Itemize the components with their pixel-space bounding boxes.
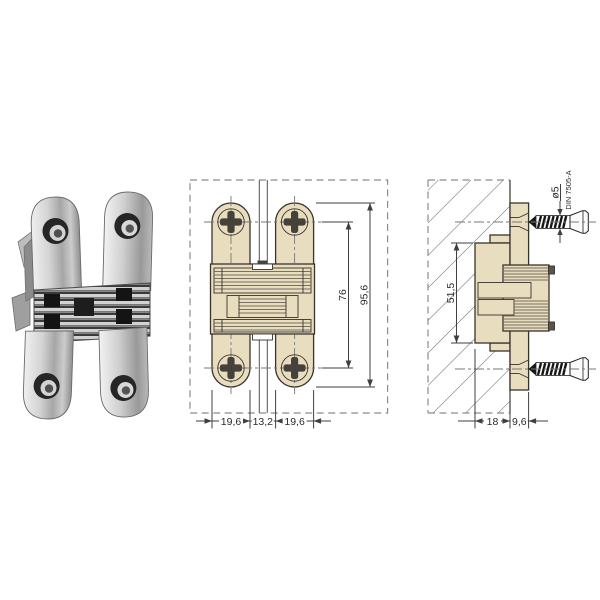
link-body (211, 261, 315, 341)
hinge-photo-strap-top-left (22, 196, 82, 301)
dim-width-center: 13,2 (253, 416, 274, 428)
phillips-screw-icon (218, 209, 244, 235)
hinge-step-top (490, 235, 510, 243)
dim-protrusion: 9,6 (512, 416, 527, 428)
hinge-photo (12, 191, 153, 419)
dim-screw-standard: DIN 7505-A (564, 170, 573, 209)
dim-body-height: 51,5 (445, 283, 457, 304)
phillips-screw-icon (281, 355, 307, 381)
dim-screw-diameter: ø5 (550, 186, 562, 198)
dim-hole-spacing: 76 (337, 289, 349, 301)
hinge-technical-figure: 19,6 13,2 19,6 76 95,6 (0, 0, 600, 600)
dim-mortise-depth: 18 (487, 416, 499, 428)
dim-width-left: 19,6 (221, 416, 242, 428)
pivot-notch-bottom (253, 334, 273, 340)
phillips-screw-icon (218, 355, 244, 381)
link-tongue-lower (478, 300, 514, 316)
side-view-drawing: 18 9,6 51,5 ø5 DIN 7505-A (428, 170, 596, 428)
pivot-cap-bottom (549, 322, 555, 330)
link-tongue-upper (478, 283, 531, 299)
hinge-photo-strap-bottom-left (22, 329, 73, 420)
front-view-hinge (204, 196, 322, 394)
hinge-photo-strap-bottom-right (99, 327, 149, 417)
pivot-pin-top (258, 261, 268, 265)
pivot-cap-top (549, 266, 555, 274)
link-band-middle (227, 296, 298, 318)
phillips-screw-icon (281, 209, 307, 235)
dim-total-height: 95,6 (359, 285, 371, 306)
hinge-photo-strap-top-right (103, 191, 154, 290)
front-view-drawing: 19,6 13,2 19,6 76 95,6 (190, 180, 388, 429)
catalog-figure: 19,6 13,2 19,6 76 95,6 (0, 0, 600, 600)
dim-width-right: 19,6 (284, 416, 305, 428)
pivot-notch-top (253, 264, 273, 270)
hinge-step-bottom (490, 343, 510, 351)
